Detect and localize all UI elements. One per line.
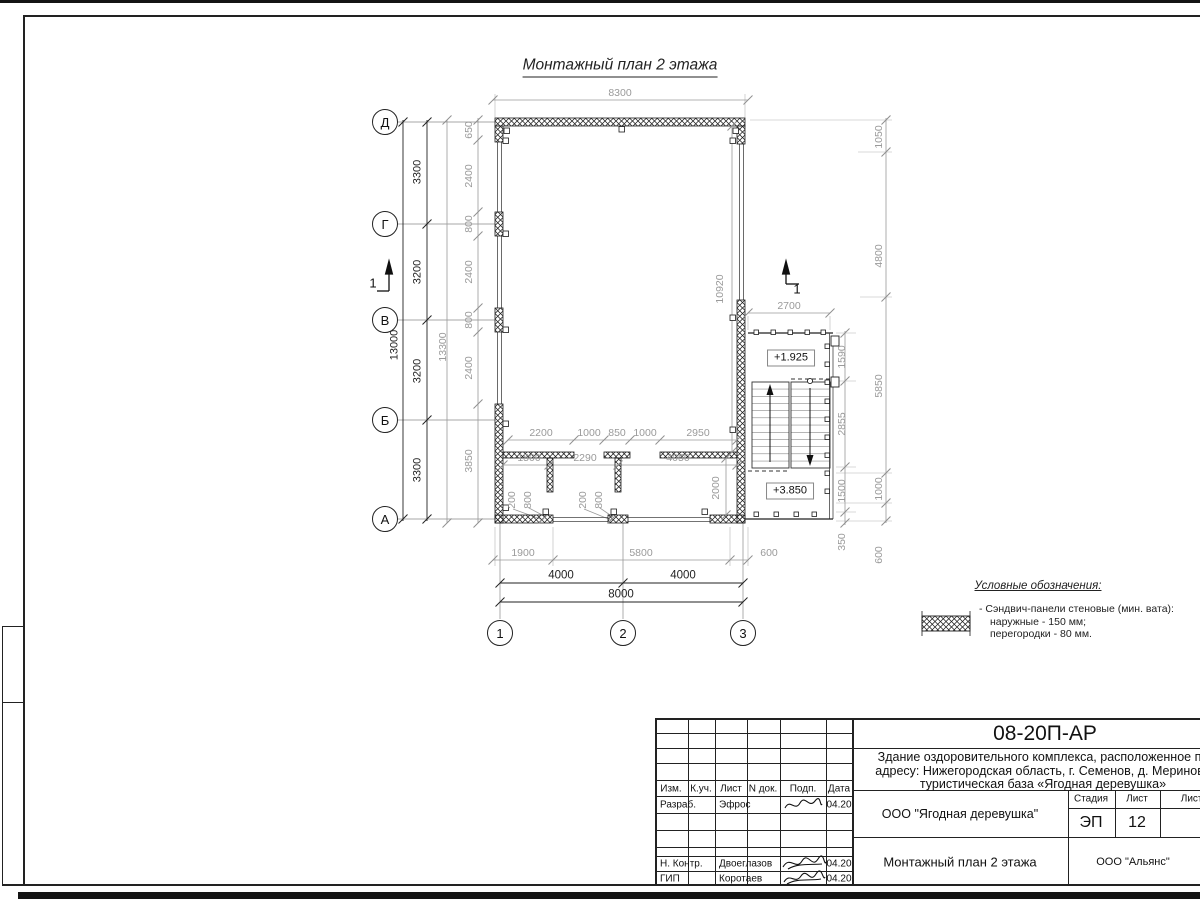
dim-label: 2200 [529, 428, 552, 439]
legend-title: Условные обозначения: [975, 580, 1102, 592]
dim-label: 13300 [438, 332, 449, 361]
dim-label: 350 [837, 533, 848, 551]
drawing-name: Монтажный план 2 этажа [883, 855, 1036, 870]
stage-value: ЭП [1080, 814, 1103, 832]
drawing-sheet: Монтажный план 2 этажа [0, 0, 1200, 900]
axis-bubble: 2 [610, 620, 636, 646]
dim-label: 2400 [464, 260, 475, 283]
dim-label: 3300 [413, 458, 424, 482]
axis-bubble: Б [372, 407, 398, 433]
col-izm: Изм. [660, 784, 681, 795]
dim-label: 2855 [837, 412, 848, 435]
project-desc-line2: адресу: Нижегородская область, г. Семено… [875, 764, 1200, 778]
dim-label: 850 [608, 428, 626, 439]
col-data: Дата [828, 784, 850, 795]
section-label: 1 [793, 283, 800, 296]
axis-bubble: А [372, 506, 398, 532]
dim-label: 1000 [874, 477, 885, 500]
sheet-number: 12 [1128, 814, 1146, 832]
dim-label: 1500 [837, 479, 848, 502]
sheet-label: Лист [1126, 794, 1148, 805]
axis-bubble: В [372, 307, 398, 333]
dim-label: 800 [464, 311, 475, 329]
dim-label: 2000 [711, 476, 722, 499]
dim-label: 13000 [390, 330, 401, 361]
dim-label: 10920 [715, 274, 726, 303]
client-org: ООО "Ягодная деревушка" [882, 807, 1038, 821]
dim-label: 4050 [666, 453, 689, 464]
dim-label: 1000 [633, 428, 656, 439]
signature-razrab [782, 796, 824, 814]
project-code: 08-20П-АР [993, 722, 1097, 746]
section-label: 1 [369, 277, 376, 290]
dim-label: 200 [578, 491, 589, 509]
legend-item-line3: перегородки - 80 мм. [990, 628, 1092, 640]
project-desc-line3: туристическая база «Ягодная деревушка» [920, 777, 1166, 791]
dim-label: 1000 [577, 428, 600, 439]
signature-gip [780, 869, 828, 888]
project-desc-line1: Здание оздоровительного комплекса, распо… [878, 750, 1200, 764]
dim-label: 5800 [629, 548, 652, 559]
level-mark: +3.850 [766, 483, 814, 500]
dim-label: 3200 [413, 260, 424, 284]
dim-label: 3850 [464, 449, 475, 472]
row-gip-role: ГИП [660, 874, 680, 885]
dim-label: 2290 [573, 453, 596, 464]
col-ndoc: N док. [749, 784, 778, 795]
dim-label: 3300 [413, 160, 424, 184]
dim-label: 5850 [874, 374, 885, 397]
dim-label: 200 [507, 491, 518, 509]
row-razrab-date: 04.20 [826, 800, 851, 811]
dim-label: 800 [523, 491, 534, 509]
axis-bubble: 1 [487, 620, 513, 646]
legend-item-line2: наружные - 150 мм; [990, 616, 1086, 628]
dim-label: 2400 [464, 356, 475, 379]
dim-label: 1590 [837, 345, 848, 368]
stage-label: Стадия [1074, 794, 1108, 805]
dim-label: 650 [464, 121, 475, 139]
col-list: Лист [720, 784, 742, 795]
row-gip-date: 04.20 [826, 874, 851, 885]
row-gip-name: Коротаев [719, 874, 762, 885]
dim-label: 4800 [874, 244, 885, 267]
row-razrab-name: Эфрос [719, 800, 751, 811]
row-razrab-role: Разраб. [660, 800, 696, 811]
legend-item-line1: - Сэндвич-панели стеновые (мин. вата): [979, 603, 1174, 615]
dim-label: 800 [594, 491, 605, 509]
axis-bubble: Д [372, 109, 398, 135]
dim-label: 1900 [511, 548, 534, 559]
row-nkontr-date: 04.20 [826, 859, 851, 870]
dim-label: 2700 [777, 301, 800, 312]
dim-label: 600 [874, 546, 885, 564]
dim-label: 600 [760, 548, 778, 559]
dim-label: 2400 [464, 164, 475, 187]
axis-bubble: Г [372, 211, 398, 237]
dim-label: 1500 [517, 453, 540, 464]
row-nkontr-name: Двоеглазов [719, 859, 772, 870]
dim-label: 8000 [608, 589, 634, 601]
axis-bubble: 3 [730, 620, 756, 646]
dim-label: 2950 [686, 428, 709, 439]
col-kuch: К.уч. [690, 784, 712, 795]
dim-label: 4000 [548, 570, 574, 582]
company-name: ООО "Альянс" [1096, 856, 1170, 868]
row-nkontr-role: Н. Контр. [660, 859, 703, 870]
dim-label: 8300 [608, 88, 631, 99]
dim-label: 3200 [413, 359, 424, 383]
col-podp: Подп. [790, 784, 817, 795]
dim-label: 1050 [874, 125, 885, 148]
sheets-label: Листов [1181, 794, 1200, 805]
level-mark: +1.925 [767, 350, 815, 367]
dim-label: 800 [464, 215, 475, 233]
dim-label: 4000 [670, 570, 696, 582]
